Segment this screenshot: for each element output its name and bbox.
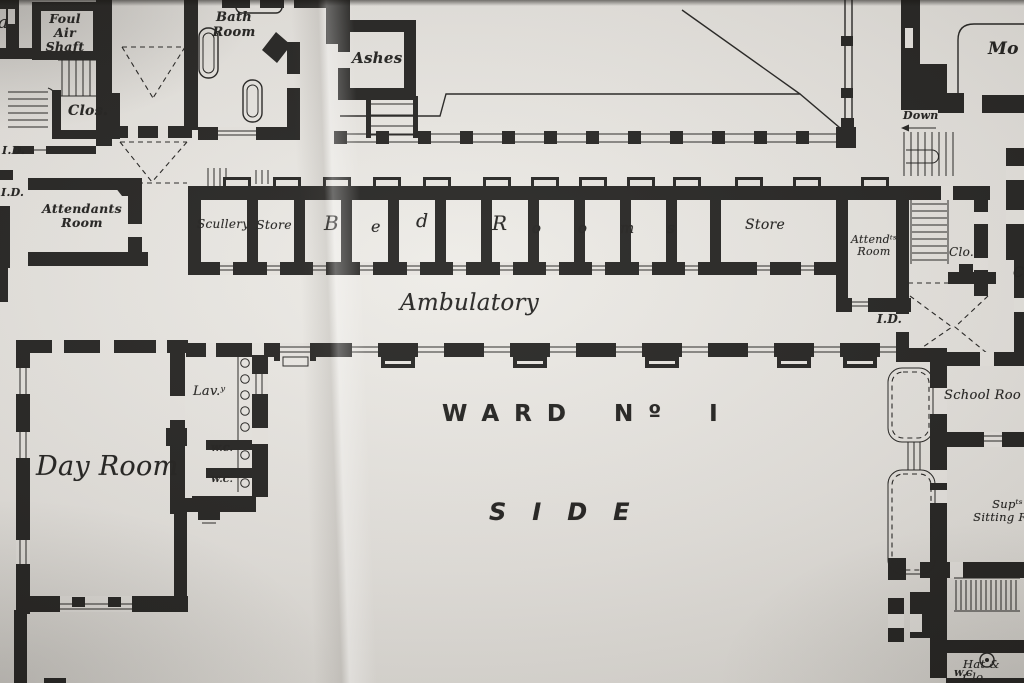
- bed-rooms-letter-b: B: [324, 212, 339, 234]
- room-label-day-room: Day Room: [36, 452, 178, 482]
- room-label-store-west: Store: [256, 218, 292, 232]
- id-label-1: I.D.: [2, 145, 25, 157]
- edge-fragment-right: C: [1013, 266, 1024, 282]
- bed-rooms-letter-m: m: [620, 220, 635, 237]
- room-label-wc-upper: W.C.: [211, 445, 233, 455]
- bed-rooms-letter-e: e: [371, 218, 381, 236]
- floorplan-drawing: [0, 0, 1024, 683]
- room-label-mortuary-clipped: Mo: [988, 40, 1019, 59]
- walls-lavatory: [192, 355, 268, 523]
- ward-title: WARD Nº I: [442, 402, 733, 428]
- room-label-attendants-west: Attendants Room: [30, 202, 134, 230]
- bed-rooms-letter-o1: o: [532, 220, 541, 237]
- floor-plan-photo: a Foul Air Shaft Clos. I.D. I.D. Attenda…: [0, 0, 1024, 683]
- room-label-wc-lower: W.C.: [211, 476, 233, 486]
- down-label: Down: [903, 110, 939, 122]
- room-label-scullery: Scullery: [197, 218, 249, 231]
- edge-fragment-left: a: [0, 14, 8, 33]
- room-label-store-east: Store: [745, 218, 785, 234]
- room-label-closet-upper: Clos.: [68, 104, 108, 120]
- side-title: SIDE: [489, 499, 656, 526]
- room-label-supt-sitting: Supᵗˢ Sitting Roo: [950, 498, 1024, 524]
- room-label-closet-east: Clo.: [949, 246, 974, 259]
- room-label-school-room: School Roo: [944, 389, 1021, 404]
- walls-top-left: [0, 0, 192, 302]
- walls-ambulatory: [24, 340, 947, 368]
- ambulatory-label: Ambulatory: [400, 291, 539, 317]
- walls-top-right: [901, 0, 1024, 176]
- room-label-wc-bottom: W.C: [954, 670, 973, 680]
- id-label-3: I.D.: [877, 313, 902, 326]
- colonnade: [208, 96, 856, 186]
- room-label-attendants-east: Attendᵗˢ Room: [845, 234, 903, 259]
- room-label-lavatory: Lav.ʸ: [193, 385, 225, 400]
- bed-rooms-letter-s: s: [667, 220, 675, 237]
- bed-rooms-letter-o2: o: [578, 220, 587, 237]
- bed-rooms-letter-r: R: [492, 212, 507, 234]
- id-label-2: I.D.: [1, 187, 24, 199]
- room-label-ashes: Ashes: [352, 50, 402, 67]
- bed-rooms-letter-d: d: [416, 211, 428, 232]
- room-label-bath-room: Bath Room: [206, 11, 262, 40]
- room-label-foul-air-shaft: Foul Air Shaft: [36, 12, 94, 54]
